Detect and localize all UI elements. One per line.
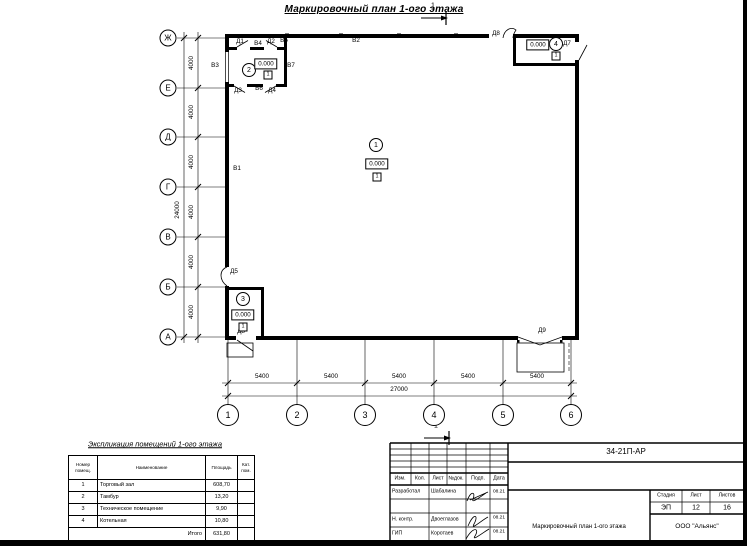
wall-mark-v4: В4 <box>254 41 262 47</box>
dim-bay-w: 5400 <box>392 374 406 380</box>
stamp-name-ncontr: Двоеглазов <box>431 517 459 522</box>
dim-bay-w: 5400 <box>255 374 269 380</box>
axis-row-v: В <box>160 229 177 246</box>
break-left <box>221 267 227 286</box>
room-category <box>238 492 255 504</box>
stage-label: Стадия <box>657 493 675 498</box>
total-label: Итого <box>69 528 206 541</box>
floor-type-mark: 1 <box>239 323 248 332</box>
room-area: 13,20 <box>206 492 238 504</box>
walls <box>225 34 579 341</box>
wall-mark-v5: В5 <box>280 38 288 44</box>
wall-mark-v1: В1 <box>233 166 241 172</box>
wall-mark-v7: В7 <box>287 63 295 69</box>
drawing-title: Маркировочный план 1-ого этажа <box>285 5 464 15</box>
stamp-role-developer: Разработал <box>392 489 420 494</box>
floor-type-mark: 1 <box>373 173 382 182</box>
total-category <box>238 528 255 541</box>
room-tag-4: 4 <box>549 37 563 51</box>
stage-value: ЭП <box>661 505 671 512</box>
stamp-date-developer: 08.21 <box>493 491 505 496</box>
axis-row-d: Д <box>160 129 177 146</box>
wall-mark-v3: В3 <box>211 63 219 69</box>
door-swings <box>221 28 587 351</box>
door-mark-d4: Д4 <box>268 88 276 94</box>
section-arrows <box>421 11 451 445</box>
dim-bay-h: 4000 <box>189 56 195 70</box>
room-name: Тамбур <box>98 492 206 504</box>
dim-bay-h: 4000 <box>189 305 195 319</box>
stamp-col-izm: Изм. <box>394 476 405 481</box>
elevation-mark: 0.000 <box>254 58 277 69</box>
axis-col-4: 4 <box>423 404 445 426</box>
explication-total-row: Итого 631,80 <box>69 528 255 541</box>
dim-bay-w: 5400 <box>461 374 475 380</box>
room-tag-3: 3 <box>236 292 250 306</box>
floor-type-mark: 1 <box>552 52 561 61</box>
stamp-company: ООО "Альянс" <box>675 524 718 531</box>
room-area: 9,90 <box>206 504 238 516</box>
room-number: 1 <box>69 480 98 492</box>
stamp-date-ncontr: 08.21 <box>493 517 505 522</box>
elevation-mark: 0.000 <box>365 158 388 169</box>
break-bottom-right <box>518 337 562 345</box>
sheets-value: 16 <box>723 505 731 512</box>
elevation-mark: 0.000 <box>231 309 254 320</box>
axis-col-2: 2 <box>286 404 308 426</box>
room-category <box>238 516 255 528</box>
header-room-area: Площадь <box>206 456 238 480</box>
sheet-value: 12 <box>692 505 700 512</box>
door-mark-d5: Д5 <box>230 269 238 275</box>
axis-col-6: 6 <box>560 404 582 426</box>
floor-type-mark: 1 <box>264 71 273 80</box>
window-b3 <box>225 52 230 82</box>
sheets-label: Листов <box>719 493 736 498</box>
dim-bay-w: 5400 <box>324 374 338 380</box>
axis-row-zh: Ж <box>160 30 177 47</box>
room-tag-1: 1 <box>369 138 383 152</box>
explication-row: 2 Тамбур 13,20 <box>69 492 255 504</box>
dim-bay-h: 4000 <box>189 105 195 119</box>
explication-row: 1 Торговый зал 608,70 <box>69 480 255 492</box>
room-area: 608,70 <box>206 480 238 492</box>
door-mark-d9: Д9 <box>538 328 546 334</box>
room-name: Техническое помещение <box>98 504 206 516</box>
axis-row-b: Б <box>160 279 177 296</box>
stamp-date-gip: 08.21 <box>493 531 505 536</box>
room-number: 3 <box>69 504 98 516</box>
stamp-col-kol: Кол. <box>415 476 425 481</box>
door-mark-d3: Д3 <box>234 88 242 94</box>
room-number: 4 <box>69 516 98 528</box>
axis-col-1: 1 <box>217 404 239 426</box>
stamp-role-gip: ГИП <box>392 531 402 536</box>
room-area: 10,80 <box>206 516 238 528</box>
dim-bay-h: 4000 <box>189 205 195 219</box>
axis-row-a: А <box>160 329 177 346</box>
porches <box>227 340 569 372</box>
room-category <box>238 480 255 492</box>
wall-mark-v2: В2 <box>352 38 360 44</box>
door-mark-d8-top: Д8 <box>492 31 500 37</box>
axis-col-3: 3 <box>354 404 376 426</box>
stamp-col-ndok: №док. <box>448 476 463 481</box>
room-number: 2 <box>69 492 98 504</box>
dim-bay-w: 5400 <box>530 374 544 380</box>
stamp-col-data: Дата <box>493 476 505 481</box>
explication-title: Экспликация помещений 1-ого этажа <box>88 440 222 448</box>
stamp-role-ncontr: Н. контр. <box>392 517 413 522</box>
sheet-label: Лист <box>690 493 701 498</box>
axis-row-g: Г <box>160 179 177 196</box>
header-room-number: Номер помещ. <box>69 456 98 480</box>
room-category <box>238 504 255 516</box>
stamp-name-developer: Шабалина <box>431 489 456 494</box>
total-area: 631,80 <box>206 528 238 541</box>
axis-row-e: Е <box>160 80 177 97</box>
explication-table: Номер помещ. Наименование Площадь Кат. п… <box>68 455 255 541</box>
explication-header-row: Номер помещ. Наименование Площадь Кат. п… <box>69 456 255 480</box>
header-room-name: Наименование <box>98 456 206 480</box>
stamp-name-gip: Коротаев <box>431 531 453 536</box>
axis-col-5: 5 <box>492 404 514 426</box>
stamp-col-list: Лист <box>432 476 443 481</box>
elevation-mark: 0.000 <box>526 39 549 50</box>
dim-bay-h: 4000 <box>189 155 195 169</box>
wall-mark-v6: В6 <box>255 86 263 92</box>
door-mark-d2: Д2 <box>267 39 275 45</box>
stamp-col-podp: Подп. <box>471 476 485 481</box>
dim-bay-h: 4000 <box>189 255 195 269</box>
dim-total-h: 24000 <box>175 201 181 219</box>
door-mark-d7: Д7 <box>563 41 571 47</box>
stamp-drawing-name: Маркировочный план 1-ого этажа <box>532 524 626 530</box>
dim-total-w: 27000 <box>390 387 408 393</box>
drawing-sheet: Маркировочный план 1-ого этажа 1 1 Ж Е Д… <box>0 0 751 547</box>
explication-row: 3 Техническое помещение 9,90 <box>69 504 255 516</box>
room-name: Котельная <box>98 516 206 528</box>
section-mark-top-label: 1 <box>431 3 435 10</box>
room-name: Торговый зал <box>98 480 206 492</box>
doc-number: 34-21П-АР <box>606 448 646 456</box>
header-room-category: Кат. пом. <box>238 456 255 480</box>
explication-row: 4 Котельная 10,80 <box>69 516 255 528</box>
door-mark-d1: Д1 <box>236 39 244 45</box>
